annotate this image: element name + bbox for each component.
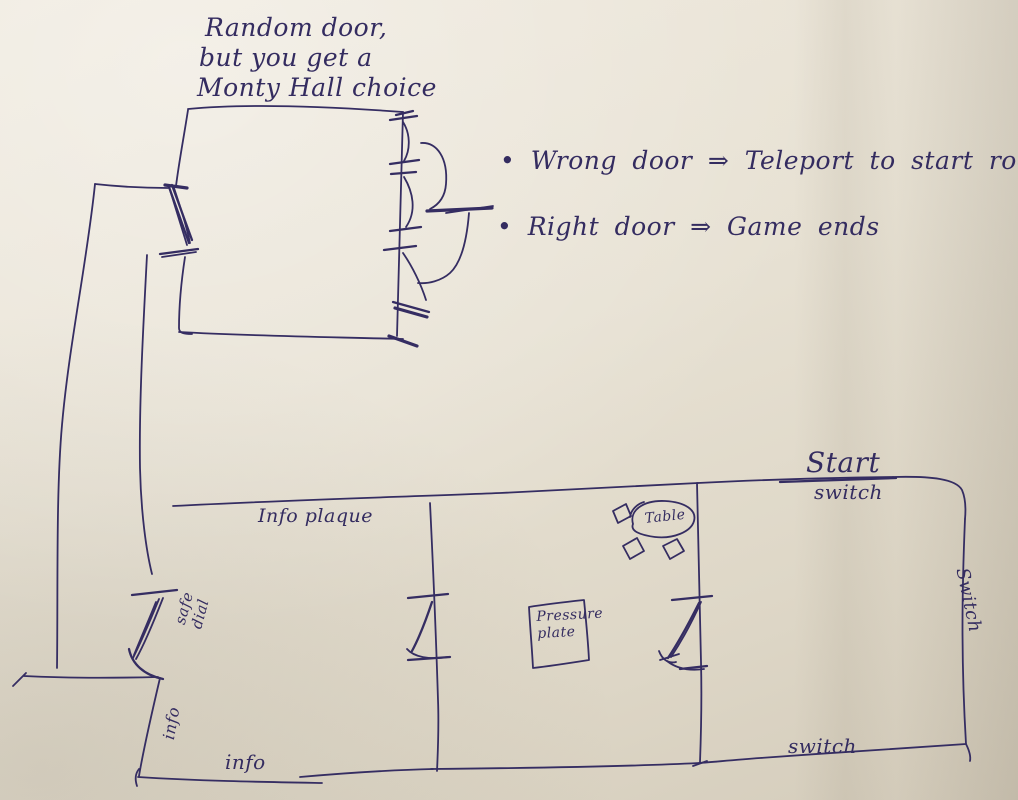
corridor-outer-wall xyxy=(57,184,95,668)
door-jamb-tick xyxy=(408,594,448,598)
squiggle-lower-curve xyxy=(418,213,469,283)
monty-note: Random door, but you get a Monty Hall ch… xyxy=(205,13,437,103)
info-plaque-label: Info plaque xyxy=(258,505,373,527)
rule-text: Right door ⇒ Game ends xyxy=(528,212,880,241)
sketch-page: Random door, but you get a Monty Hall ch… xyxy=(0,0,1018,800)
door-jamb-tick xyxy=(408,657,450,660)
squiggle-upper-curve xyxy=(421,143,446,209)
door-jamb-tick xyxy=(391,172,416,174)
lower-top-wall xyxy=(173,483,698,506)
chair-diamond xyxy=(623,538,644,559)
monty-note-line: but you get a xyxy=(199,43,437,73)
door-jamb-tick xyxy=(132,590,177,595)
pressure-plate-label: Pressure plate xyxy=(536,606,604,643)
monty-note-line: Random door, xyxy=(205,13,437,43)
monty-room-left-wall-upper xyxy=(176,110,188,186)
corridor xyxy=(13,184,168,686)
door-leaf-stroke xyxy=(136,598,163,659)
door-jamb-tick xyxy=(672,596,712,600)
monty-room-top-wall xyxy=(188,106,403,112)
sketch-linework xyxy=(0,0,1018,800)
bottom-right-hook xyxy=(966,744,970,761)
monty-room-left-wall-lower xyxy=(179,257,192,334)
corridor-top-wall xyxy=(95,184,168,188)
door-swing xyxy=(403,122,409,161)
monty-note-line: Monty Hall choice xyxy=(197,73,437,103)
left-room-bottom-label: info xyxy=(225,750,266,774)
door-swing xyxy=(404,177,413,227)
door-leaf-stroke xyxy=(668,603,699,658)
safe-dial-door xyxy=(129,590,177,679)
rule-right-door: • Right door ⇒ Game ends xyxy=(497,212,880,241)
rule-wrong-door: • Wrong door ⇒ Teleport to start room xyxy=(500,146,1018,175)
monty-room-outline xyxy=(176,106,417,346)
pressure-plate-line: Pressure xyxy=(536,606,604,626)
left-room-bottom-wall xyxy=(138,777,322,783)
start-room-corner xyxy=(893,477,965,519)
left-room-left-wall xyxy=(139,678,160,776)
bullet-icon: • xyxy=(500,146,515,175)
monty-room-left-door xyxy=(160,185,198,257)
corridor-inner-wall xyxy=(140,255,152,574)
door-leaf-stroke xyxy=(412,602,432,651)
corridor-bottom-wall xyxy=(24,676,158,678)
bullet-icon: • xyxy=(497,212,512,241)
chair-diamond xyxy=(663,539,684,559)
door-leaf-stroke xyxy=(134,602,156,655)
monty-room-right-doors xyxy=(384,116,429,317)
start-room-subtitle: switch xyxy=(814,480,883,504)
monty-room-corner-tick xyxy=(389,336,417,346)
monty-room-bottom-wall xyxy=(179,332,403,339)
door-swing xyxy=(403,253,426,300)
chair-diamond xyxy=(613,504,631,523)
pointer-squiggle xyxy=(418,143,493,283)
middle-room-bottom-wall xyxy=(431,763,699,769)
pressure-plate-line: plate xyxy=(537,622,605,642)
room-divider-wall xyxy=(430,503,438,771)
middle-wall-left xyxy=(407,503,450,771)
rule-text: Wrong door ⇒ Teleport to start room xyxy=(531,146,1018,175)
left-room-bottom-wall-stroke xyxy=(300,769,433,777)
corridor-bottom-tick xyxy=(13,673,26,686)
room-divider-wall xyxy=(697,483,701,762)
start-room-bottom-label: switch xyxy=(788,734,857,758)
start-room-title: Start xyxy=(806,446,880,479)
door-leaf-stroke xyxy=(174,188,190,243)
